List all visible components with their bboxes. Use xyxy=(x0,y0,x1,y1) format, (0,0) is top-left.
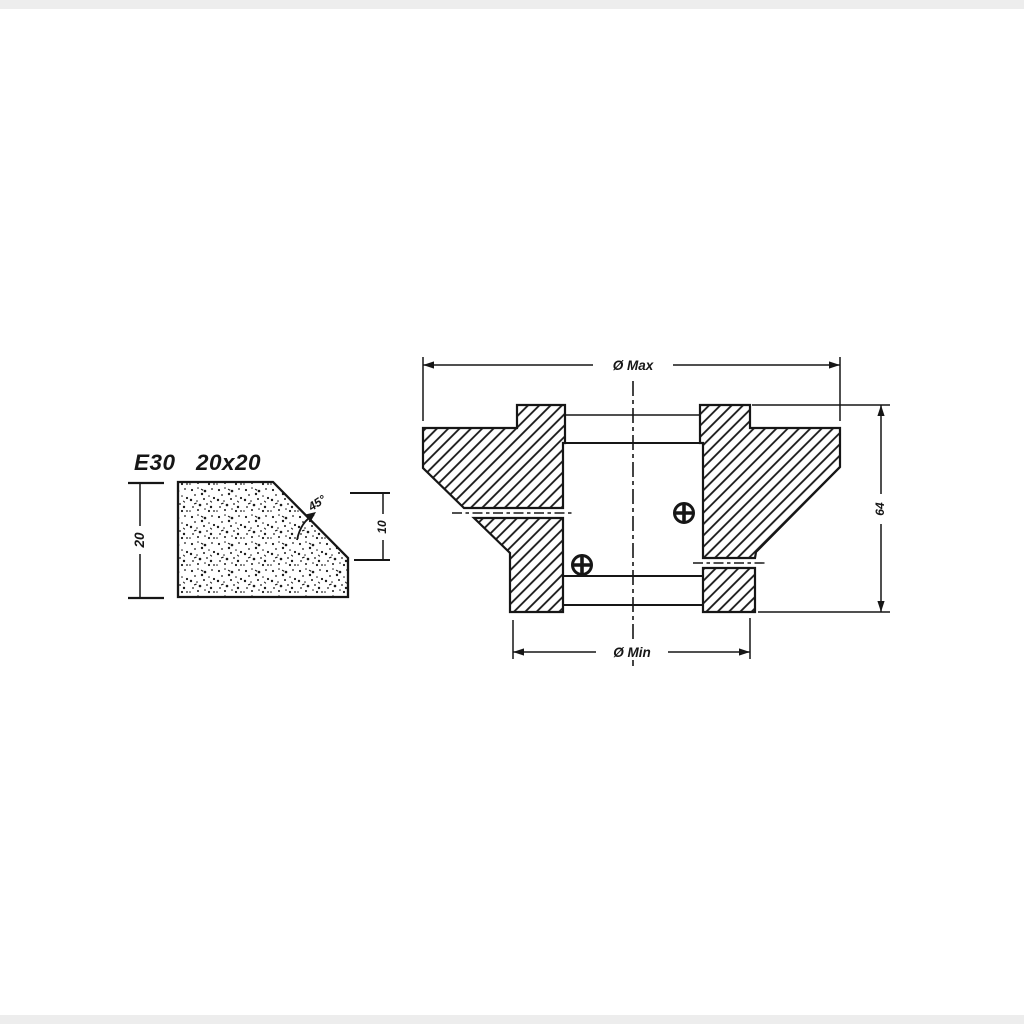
section-body-upper-left xyxy=(423,405,565,508)
section-body-upper-right xyxy=(700,405,840,558)
profile-side-dimension: 10 xyxy=(350,493,390,560)
profile-title-size: 20x20 xyxy=(195,450,261,475)
min-diameter-label: Ø Min xyxy=(613,645,651,660)
section-body-lower-left xyxy=(474,518,563,612)
set-screw-icon xyxy=(573,556,592,575)
section-body-lower-right xyxy=(703,568,755,612)
height-label: 64 xyxy=(873,502,887,516)
min-diameter-dimension: Ø Min xyxy=(513,618,750,660)
section-figure: Ø Max xyxy=(423,356,890,667)
chamfer-angle-label: 45° xyxy=(305,492,329,514)
arrowhead-top xyxy=(877,405,884,416)
profile-height-dimension: 20 xyxy=(128,483,164,598)
profile-figure: E30 20x20 20 10 45° xyxy=(128,450,390,598)
technical-drawing: E30 20x20 20 10 45° xyxy=(0,0,1024,1024)
max-diameter-label: Ø Max xyxy=(613,358,654,373)
profile-title-code: E30 xyxy=(134,450,176,475)
max-diameter-dimension: Ø Max xyxy=(423,356,840,421)
profile-height-label: 20 xyxy=(132,532,147,549)
arrowhead-right xyxy=(739,648,750,655)
profile-side-label: 10 xyxy=(375,520,389,534)
arrowhead-right xyxy=(829,361,840,368)
arrowhead-left xyxy=(513,648,524,655)
drawing-canvas: E30 20x20 20 10 45° xyxy=(0,0,1024,1024)
arrowhead-left xyxy=(423,361,434,368)
arrowhead-bottom xyxy=(877,601,884,612)
set-screw-icon xyxy=(675,504,694,523)
